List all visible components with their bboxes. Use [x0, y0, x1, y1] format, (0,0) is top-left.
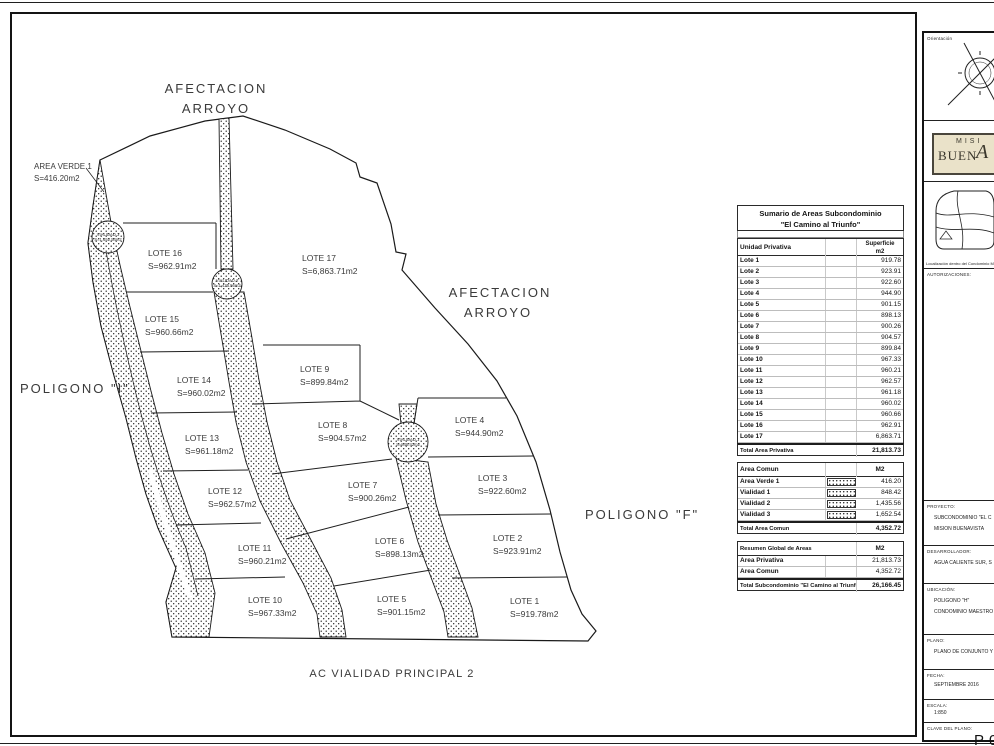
- lot-15-area: S=960.66m2: [145, 327, 194, 337]
- resumen-header: Resumen Global de Areas M2: [737, 541, 904, 556]
- afectacion-arroyo-top-line2: ARROYO: [182, 101, 250, 116]
- table-title-line1: Sumario de Areas Subcondominio: [738, 208, 903, 219]
- title-block: Orientación MISI BUEN A: [922, 31, 994, 742]
- escala-label: ESCALA:: [927, 703, 947, 708]
- table-row: Lote 16962.91: [738, 421, 903, 432]
- table-row: Lote 2923.91: [738, 267, 903, 278]
- vialidad-principal-label: AC VIALIDAD PRINCIPAL 2: [309, 668, 474, 680]
- lot-1-area: S=919.78m2: [510, 609, 559, 619]
- lot-14-name: LOTE 14: [177, 375, 211, 385]
- afectacion-arroyo-top-line1: AFECTACION: [165, 81, 268, 96]
- resumen-rows: Area Privativa21,813.73 Area Comun4,352.…: [737, 556, 904, 578]
- lot-16-area: S=962.91m2: [148, 261, 197, 271]
- stipple-swatch: [827, 511, 856, 519]
- lot-4-name: LOTE 4: [455, 415, 485, 425]
- table-title: Sumario de Areas Subcondominio "El Camin…: [737, 205, 904, 231]
- table-row: Lote 8904.57: [738, 333, 903, 344]
- vialidad-2-area: S=1,435.56m2: [213, 283, 241, 288]
- desarrollador-value: AGUA CALIENTE SUR, S: [924, 558, 994, 569]
- autorizaciones-section: AUTORIZACIONES:: [924, 269, 994, 501]
- plano-value: PLANO DE CONJUNTO Y: [924, 647, 994, 658]
- sheet-top-rule: [0, 2, 994, 3]
- lot-7-area: S=900.26m2: [348, 493, 397, 503]
- lot-10-name: LOTE 10: [248, 595, 282, 605]
- lot-10-area: S=967.33m2: [248, 608, 297, 618]
- ubicacion-label: UBICACIÓN:: [927, 587, 955, 592]
- lot-5-name: LOTE 5: [377, 594, 407, 604]
- lot-11-area: S=960.21m2: [238, 556, 287, 566]
- lot-9-area: S=899.84m2: [300, 377, 349, 387]
- area-comun-header: Area Comun M2: [737, 462, 904, 477]
- table-row: Lote 5901.15: [738, 300, 903, 311]
- desarrollador-section: DESARROLLADOR: AGUA CALIENTE SUR, S: [924, 546, 994, 584]
- area-summary-table: Sumario de Areas Subcondominio "El Camin…: [737, 205, 904, 591]
- afectacion-arroyo-mid-line2: ARROYO: [464, 305, 532, 320]
- lot-4-area: S=944.90m2: [455, 428, 504, 438]
- table-row: Lote 7900.26: [738, 322, 903, 333]
- lot-13-name: LOTE 13: [185, 433, 219, 443]
- lot-15-name: LOTE 15: [145, 314, 179, 324]
- lot-12-area: S=962.57m2: [208, 499, 257, 509]
- table-row: Lote 6898.13: [738, 311, 903, 322]
- table-row: Vialidad 1848.42: [738, 488, 903, 499]
- lot-2-area: S=923.91m2: [493, 546, 542, 556]
- total-comun-row: Total Area Comun 4,352.72: [737, 521, 904, 534]
- area-verde-name: AREA VERDE 1: [34, 162, 92, 171]
- poligono-f-label: POLIGONO "F": [585, 507, 699, 522]
- area-verde-area: S=416.20m2: [34, 174, 80, 183]
- stipple-swatch: [827, 489, 856, 497]
- lot-7-name: LOTE 7: [348, 480, 378, 490]
- lot-17-name: LOTE 17: [302, 253, 336, 263]
- table-row: Area Comun4,352.72: [738, 567, 903, 578]
- table-row: Lote 10967.33: [738, 355, 903, 366]
- lot-17-area: S=6,863.71m2: [302, 266, 358, 276]
- lot-rows: Lote 1919.78 Lote 2923.91 Lote 3922.60 L…: [737, 256, 904, 443]
- table-row: Lote 3922.60: [738, 278, 903, 289]
- orientation-section: Orientación: [924, 33, 994, 121]
- ubicacion-value-2: CONDOMINIO MAESTRO: [924, 607, 994, 618]
- fecha-section: FECHA: SEPTIEMBRE 2016: [924, 670, 994, 700]
- afectacion-arroyo-mid-line1: AFECTACION: [449, 285, 552, 300]
- lot-12-name: LOTE 12: [208, 486, 242, 496]
- lot-3-area: S=922.60m2: [478, 486, 527, 496]
- desarrollador-label: DESARROLLADOR:: [927, 549, 971, 554]
- proyecto-label: PROYECTO:: [927, 504, 955, 509]
- vialidad-3-area: S=1,652.54m2: [94, 237, 122, 242]
- table-row: Lote 176,863.71: [738, 432, 903, 443]
- table-spacer-row: [737, 231, 904, 238]
- lot-16-name: LOTE 16: [148, 248, 182, 258]
- lot-5-area: S=901.15m2: [377, 607, 426, 617]
- logo-section: MISI BUEN A: [924, 121, 994, 182]
- mision-buenavista-logo: MISI BUEN A: [932, 133, 994, 175]
- fecha-value: SEPTIEMBRE 2016: [924, 680, 994, 691]
- col-header-superficie: Superficie m2: [857, 239, 903, 257]
- vialidad-1-area: S=848.42m2: [396, 442, 421, 447]
- table-title-line2: "El Camino al Triunfo": [738, 219, 903, 230]
- plan-sheet: AFECTACION ARROYO AFECTACION ARROYO POLI…: [0, 0, 994, 746]
- orientation-label: Orientación: [927, 36, 952, 41]
- table-row: Lote 12962.57: [738, 377, 903, 388]
- table-row: Area Privativa21,813.73: [738, 556, 903, 567]
- lot-3-name: LOTE 3: [478, 473, 508, 483]
- stipple-swatch: [827, 478, 856, 486]
- stipple-swatch: [827, 500, 856, 508]
- lot-1-name: LOTE 1: [510, 596, 540, 606]
- lot-8-area: S=904.57m2: [318, 433, 367, 443]
- proyecto-value-1: SUBCONDOMINIO "EL C: [924, 513, 994, 524]
- autorizaciones-label: AUTORIZACIONES:: [927, 272, 971, 277]
- ubicacion-value-1: POLIGONO "H": [924, 596, 994, 607]
- logo-flourish: A: [976, 141, 988, 164]
- table-row: Lote 15960.66: [738, 410, 903, 421]
- logo-line2: BUEN: [938, 148, 977, 164]
- ubicacion-section: UBICACIÓN: POLIGONO "H" CONDOMINIO MAEST…: [924, 584, 994, 635]
- plano-label: PLANO:: [927, 638, 945, 643]
- plano-section: PLANO: PLANO DE CONJUNTO Y: [924, 635, 994, 670]
- table-row: Vialidad 31,652.54: [738, 510, 903, 521]
- table-row: Lote 1919.78: [738, 256, 903, 267]
- area-comun-rows: Area Verde 1416.20 Vialidad 1848.42 Vial…: [737, 477, 904, 521]
- location-map-caption: Localización dentro del Condominio Ma: [926, 261, 994, 266]
- lot-6-name: LOTE 6: [375, 536, 405, 546]
- escala-section: ESCALA: 1:850: [924, 700, 994, 723]
- lot-8-name: LOTE 8: [318, 420, 348, 430]
- sheet-code: P-0: [974, 732, 994, 746]
- lot-14-area: S=960.02m2: [177, 388, 226, 398]
- location-map-section: Localización dentro del Condominio Ma: [924, 182, 994, 269]
- total-privativa-row: Total Area Privativa 21,813.73: [737, 443, 904, 456]
- clave-section: CLAVE DEL PLANO: P-0: [924, 723, 994, 746]
- clave-label: CLAVE DEL PLANO:: [927, 726, 972, 731]
- lot-9-name: LOTE 9: [300, 364, 330, 374]
- lot-11-name: LOTE 11: [238, 543, 272, 553]
- lot-13-area: S=961.18m2: [185, 446, 234, 456]
- fecha-label: FECHA:: [927, 673, 945, 678]
- sheet-bottom-rule: [0, 743, 994, 744]
- col-header-unidad: Unidad Privativa: [738, 239, 826, 257]
- lot-2-name: LOTE 2: [493, 533, 523, 543]
- lot-6-area: S=898.13m2: [375, 549, 424, 559]
- escala-value: 1:850: [924, 708, 994, 719]
- location-map-sketch: [924, 185, 994, 259]
- table-row: Area Verde 1416.20: [738, 477, 903, 488]
- proyecto-section: PROYECTO: SUBCONDOMINIO "EL C MISION BUE…: [924, 501, 994, 546]
- table-row: Vialidad 21,435.56: [738, 499, 903, 510]
- table-row: Lote 13961.18: [738, 388, 903, 399]
- proyecto-value-2: MISION BUENAVISTA: [924, 524, 994, 535]
- table-row: Lote 9899.84: [738, 344, 903, 355]
- poligono-i-label: POLIGONO "I": [20, 381, 130, 396]
- table-row: Lote 14960.02: [738, 399, 903, 410]
- table-row: Lote 11960.21: [738, 366, 903, 377]
- total-global-row: Total Subcondominio "El Camino al Triunf…: [737, 578, 904, 591]
- compass-rose-icon: [924, 33, 994, 120]
- table-row: Lote 4944.90: [738, 289, 903, 300]
- table-header-row: Unidad Privativa Superficie m2: [737, 238, 904, 256]
